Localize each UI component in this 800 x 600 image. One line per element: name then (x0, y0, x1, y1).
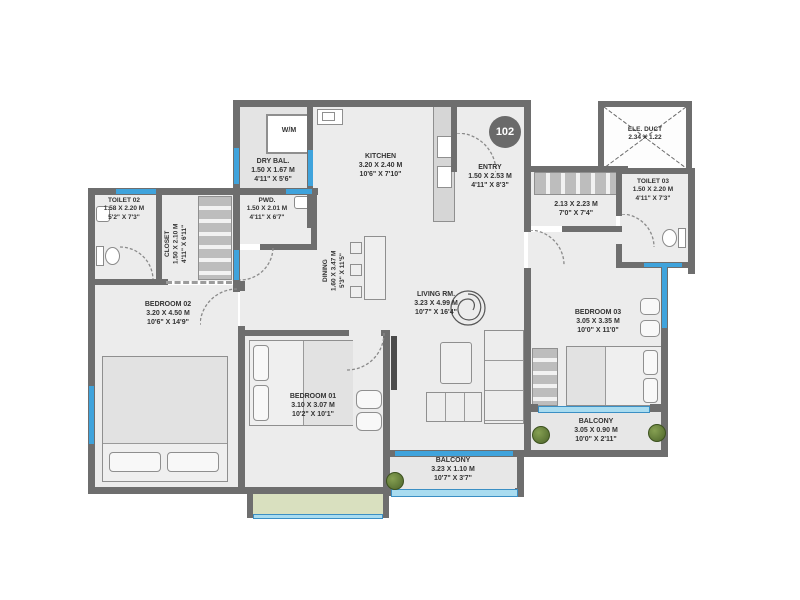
bed-blanket (567, 347, 606, 405)
label-kitchen: KITCHEN 3.20 X 2.40 M 10'6" X 7'10" (328, 152, 433, 179)
wall (88, 487, 390, 494)
room-dim-ft: 10'2" X 10'1" (258, 410, 368, 419)
label-dining: DINING 1.60 X 3.47 M 5'3" X 11'5" (322, 230, 347, 312)
dining-chair (350, 242, 362, 254)
window (286, 189, 312, 194)
label-living: LIVING RM. 3.23 X 4.99 M 10'7" X 16'4" (378, 290, 494, 317)
room-name: TOILET 03 (620, 178, 686, 186)
door-arc-bedroom03 (529, 230, 565, 266)
wc-tank (678, 228, 686, 248)
room-dim-m: 3.20 X 2.40 M (328, 161, 433, 170)
coffee-table (440, 342, 472, 384)
room-dim-m: 1.60 X 3.47 M (330, 230, 338, 312)
label-wm: W/M (266, 126, 312, 135)
room-dim-ft: 4'11" X 8'3" (456, 181, 524, 190)
room-dim-ft: 4'11" X 6'7" (238, 214, 296, 222)
label-closet: CLOSET 1.50 X 2.10 M 4'11" X 6'11" (164, 206, 189, 282)
room-dim-m: 1.58 X 2.20 M (92, 205, 156, 213)
wall (238, 326, 245, 494)
balcony-rail (391, 489, 518, 497)
room-dim-ft: 5'3" X 11'5" (339, 230, 347, 312)
room-dim-ft: 10'6" X 7'10" (328, 170, 433, 179)
closet-wardrobe (198, 196, 232, 280)
label-toilet-03: TOILET 03 1.50 X 2.20 M 4'11" X 7'3" (620, 178, 686, 203)
balcony-rail (538, 406, 650, 413)
pillow (109, 452, 161, 472)
label-bedroom-02: BEDROOM 02 3.20 X 4.50 M 10'6" X 14'9" (108, 300, 228, 327)
room-name: BALCONY (394, 456, 512, 465)
room-dim-m: 2.13 X 2.23 M (532, 200, 620, 209)
wall (88, 188, 95, 494)
room-dim-m: 1.50 X 2.53 M (456, 172, 524, 181)
door-arc-toilet02 (120, 246, 154, 280)
tv-unit (391, 336, 397, 390)
wall (524, 268, 531, 455)
room-dim-m: 3.05 X 0.90 M (536, 426, 656, 435)
kitchen-hob (437, 136, 452, 158)
sofa-small (426, 392, 482, 422)
room-dim-ft: 10'0" X 11'0" (540, 326, 656, 335)
label-bedroom-01: BEDROOM 01 3.10 X 3.07 M 10'2" X 10'1" (258, 392, 368, 419)
floor-plan: 102 W/M DRY BAL. 1.50 X 1.67 M 4'11" X 5… (0, 0, 800, 600)
sofa (484, 330, 524, 424)
label-entry: ENTRY 1.50 X 2.53 M 4'11" X 8'3" (456, 163, 524, 190)
pillow (643, 350, 658, 375)
room-green-deck (253, 494, 383, 516)
room-dim-ft: 4'11" X 7'3" (620, 195, 686, 203)
balcony-rail (253, 514, 383, 519)
wc-tank (96, 246, 104, 266)
label-balcony-bed03: BALCONY 3.05 X 0.90 M 10'0" X 2'11" (536, 417, 656, 444)
room-dim-m: 1.50 X 2.20 M (620, 186, 686, 194)
pillow (167, 452, 219, 472)
wall (562, 226, 622, 232)
window (89, 386, 94, 444)
wc-bowl (662, 229, 677, 247)
kitchen-sink (437, 166, 452, 188)
window (234, 250, 239, 280)
room-dim-m: 3.23 X 4.99 M (378, 299, 494, 308)
room-dim-ft: 10'7" X 16'4" (378, 308, 494, 317)
room-name: ENTRY (456, 163, 524, 172)
sink-basin (322, 112, 335, 121)
room-name: PWD. (238, 197, 296, 205)
passage-cabinet (534, 172, 618, 195)
room-name: BEDROOM 02 (108, 300, 228, 309)
room-name: DINING (322, 230, 330, 312)
room-name: BEDROOM 03 (540, 308, 656, 317)
room-name: CLOSET (164, 206, 172, 282)
room-dim-ft: 4'11" X 6'11" (181, 206, 189, 282)
pillow (253, 345, 269, 381)
label-ele-duct: ELE. DUCT 2.34 X 1.22 (604, 126, 686, 143)
room-name: ELE. DUCT (604, 126, 686, 134)
window (116, 189, 156, 194)
toilet-wc (662, 228, 686, 248)
room-name: TOILET 02 (92, 197, 156, 205)
wall (238, 281, 245, 291)
room-dim-ft: 5'2" X 7'3" (92, 214, 156, 222)
room-name: BEDROOM 01 (258, 392, 368, 401)
room-dim-m: 3.20 X 4.50 M (108, 309, 228, 318)
room-dim-m: 1.50 X 2.01 M (238, 205, 296, 213)
window (662, 264, 667, 328)
wall (524, 404, 538, 412)
wall (156, 192, 162, 284)
unit-number-badge: 102 (489, 116, 521, 148)
room-dim-ft: 7'0" X 7'4" (532, 209, 620, 218)
wall (524, 450, 668, 457)
room-dim-ft: 10'0" X 2'11" (536, 435, 656, 444)
wall (233, 100, 531, 107)
wall (524, 166, 628, 172)
room-dim-m: 3.05 X 3.35 M (540, 317, 656, 326)
room-dim-ft: 10'6" X 14'9" (108, 318, 228, 327)
room-name: LIVING RM. (378, 290, 494, 299)
dining-chair (350, 264, 362, 276)
room-name: KITCHEN (328, 152, 433, 161)
wc-bowl (105, 247, 120, 265)
label-passage: 2.13 X 2.23 M 7'0" X 7'4" (532, 200, 620, 218)
label-bedroom-03: BEDROOM 03 3.05 X 3.35 M 10'0" X 11'0" (540, 308, 656, 335)
door-arc-toilet03 (621, 214, 655, 248)
room-name: DRY BAL. (237, 157, 309, 166)
room-name: BALCONY (536, 417, 656, 426)
wall (383, 494, 389, 518)
room-dim-ft: 10'7" X 3'7" (394, 474, 512, 483)
room-dim-m: 3.10 X 3.07 M (258, 401, 368, 410)
door-arc-pwd (240, 247, 274, 281)
bedroom03-wardrobe (532, 348, 558, 406)
pillow (643, 378, 658, 403)
bed-blanket (103, 357, 227, 444)
room-dim-m: 2.34 X 1.22 (604, 134, 686, 142)
door-arc-bedroom01 (347, 333, 385, 371)
room-name: W/M (266, 126, 312, 135)
room-dim-ft: 4'11" X 5'6" (237, 175, 309, 184)
label-toilet-02: TOILET 02 1.58 X 2.20 M 5'2" X 7'3" (92, 197, 156, 222)
wall (688, 168, 695, 274)
label-pwd: PWD. 1.50 X 2.01 M 4'11" X 6'7" (238, 197, 296, 222)
wall (616, 168, 695, 174)
room-dim-m: 1.50 X 2.10 M (172, 206, 180, 282)
room-dim-m: 1.50 X 1.67 M (237, 166, 309, 175)
label-balcony-living: BALCONY 3.23 X 1.10 M 10'7" X 3'7" (394, 456, 512, 483)
room-dim-m: 3.23 X 1.10 M (394, 465, 512, 474)
wall (311, 188, 317, 250)
dining-chair (350, 286, 362, 298)
label-dry-balcony: DRY BAL. 1.50 X 1.67 M 4'11" X 5'6" (237, 157, 309, 184)
wall (245, 330, 349, 336)
toilet-wc (96, 246, 120, 266)
